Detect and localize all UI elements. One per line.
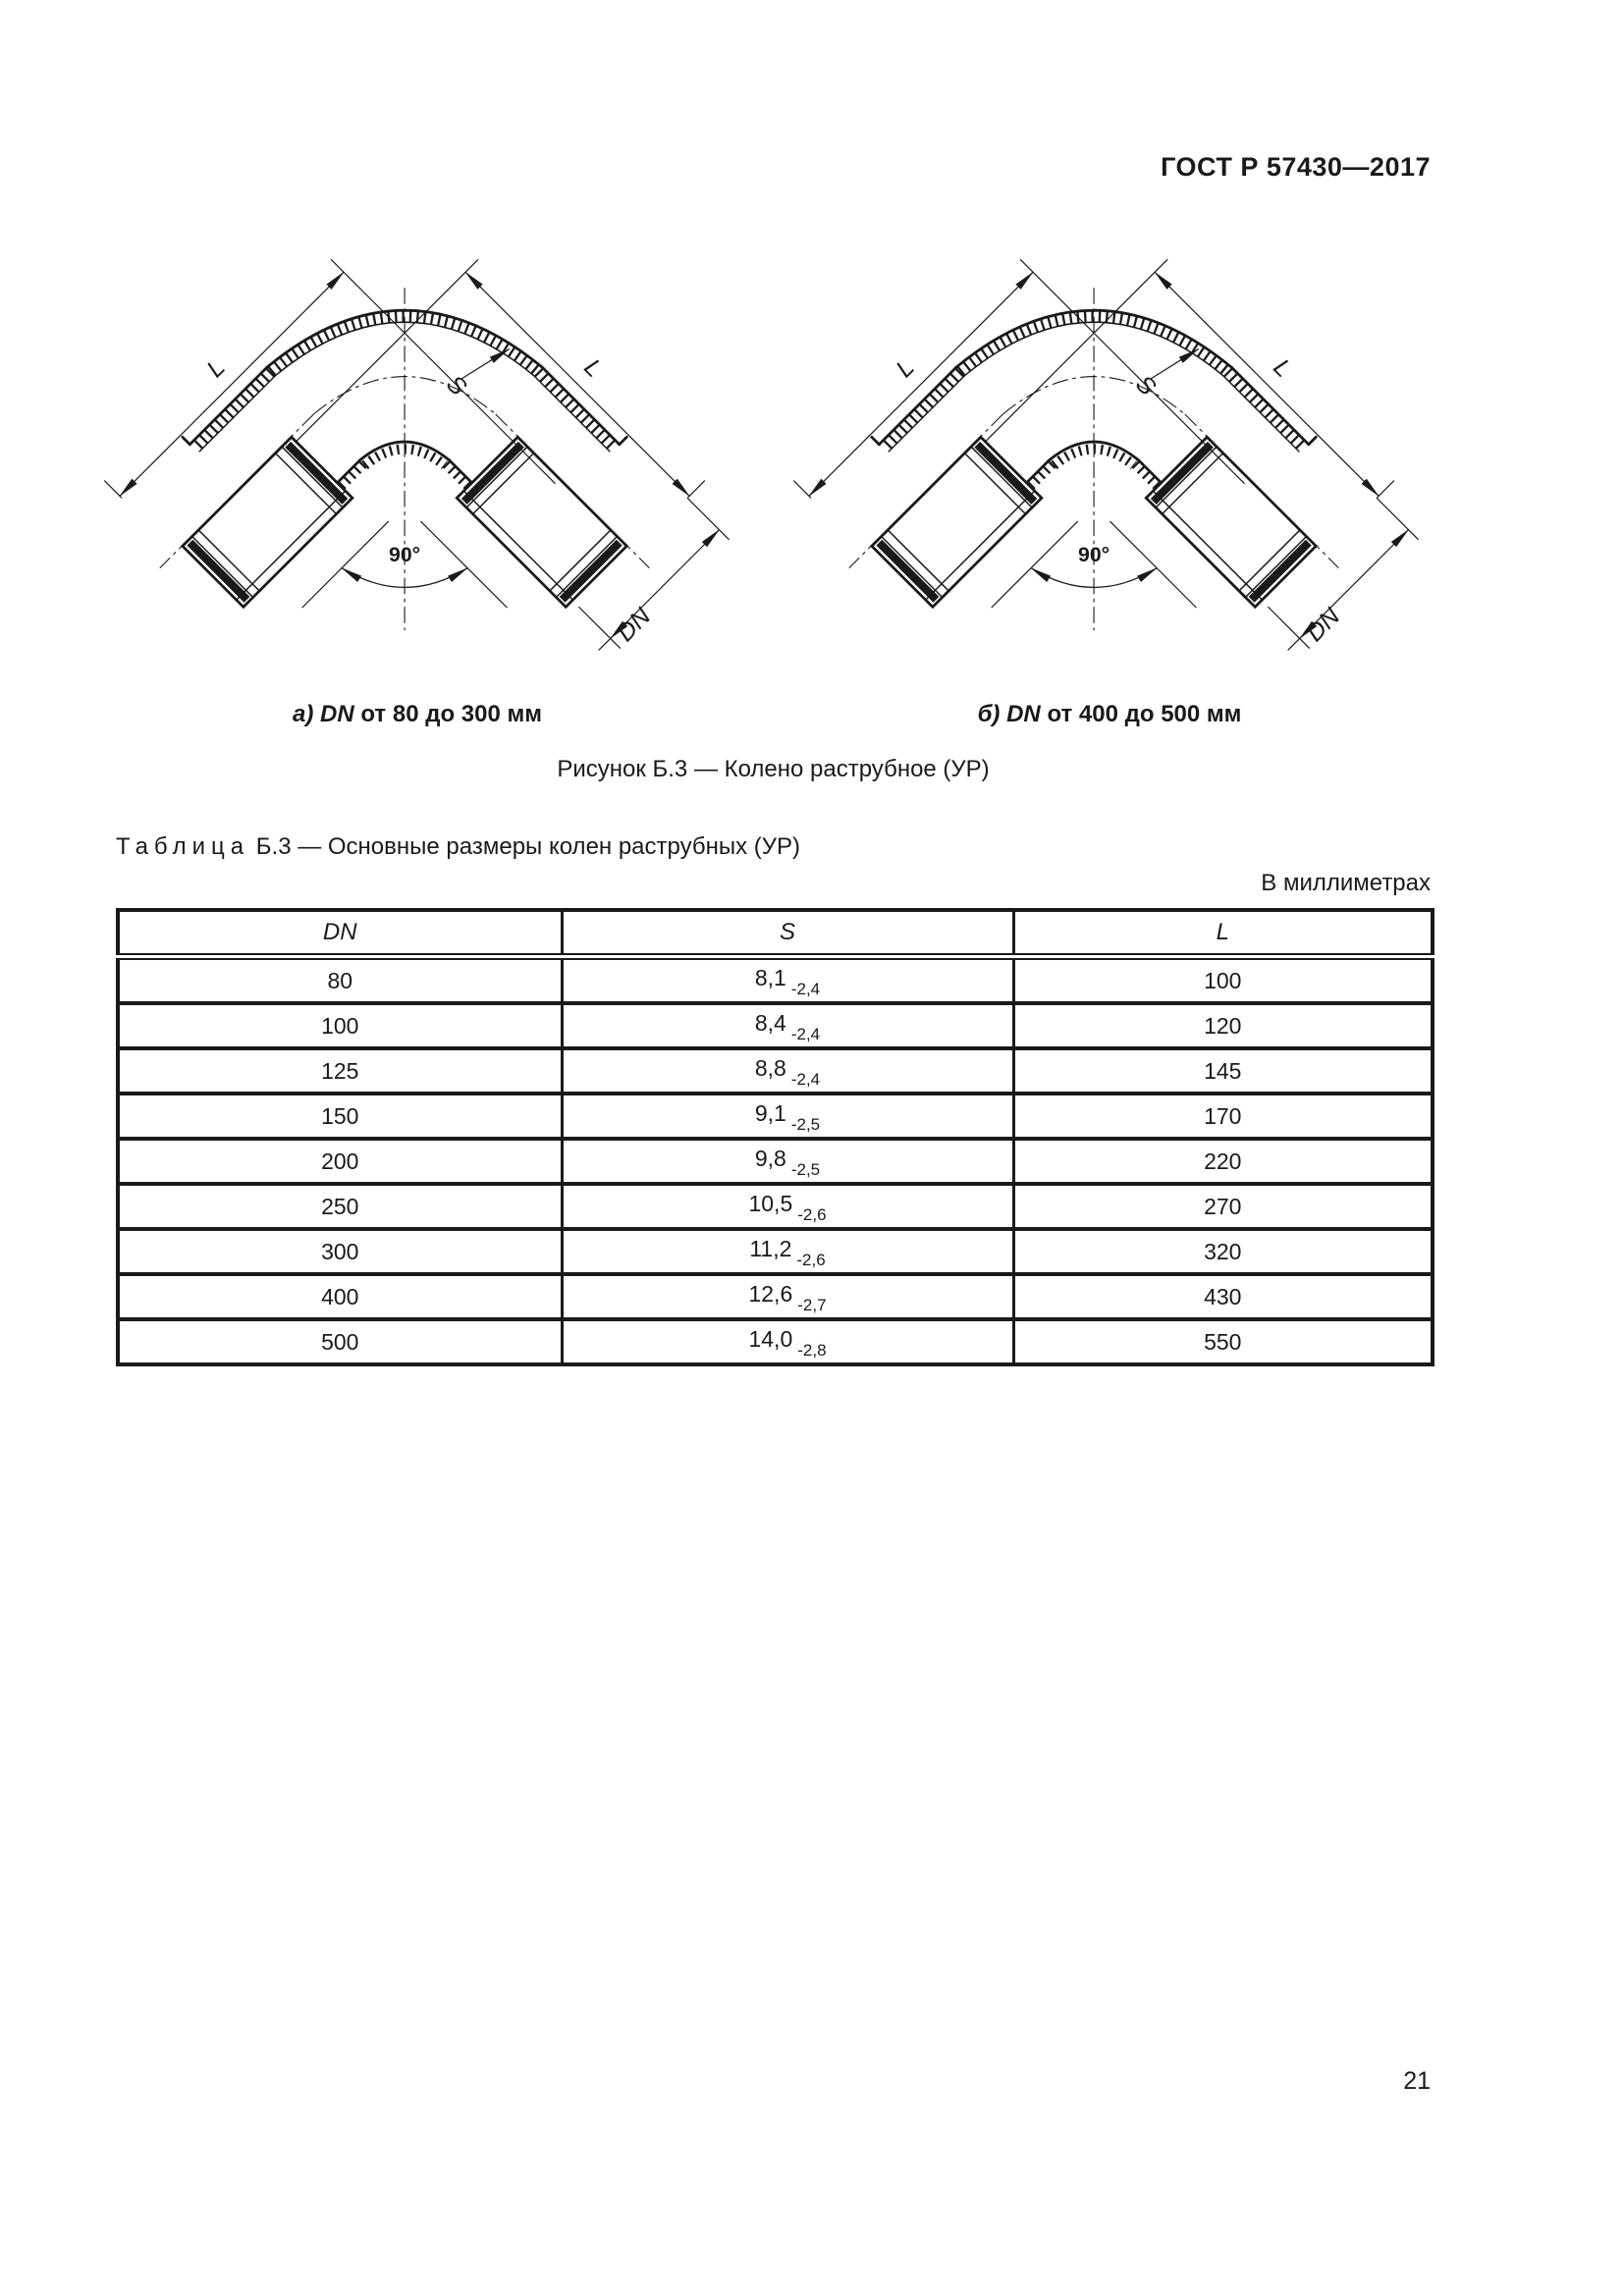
table-row: 1008,4-2,4120 [118, 1003, 1433, 1048]
figure-a-caption-dn: DN [320, 701, 354, 727]
elbow-drawing-a [98, 214, 736, 683]
document-page: ГОСТ Р 57430—2017 [0, 0, 1624, 2296]
table-caption-title: — Основные размеры колен раструбных (УР) [298, 833, 800, 860]
cell-l: 320 [1013, 1229, 1433, 1274]
units-note: В миллиметрах [116, 870, 1431, 897]
figure-a-caption-letter: а) [293, 701, 313, 727]
table-row: 25010,5-2,6270 [118, 1184, 1433, 1229]
elbow-drawing-b [787, 214, 1426, 683]
page-number: 21 [116, 2067, 1431, 2096]
col-header-l: L [1013, 910, 1433, 957]
cell-s: 9,8-2,5 [562, 1139, 1013, 1184]
cell-s: 8,8-2,4 [562, 1048, 1013, 1094]
cell-s: 12,6-2,7 [562, 1274, 1013, 1319]
cell-l: 430 [1013, 1274, 1433, 1319]
col-header-dn: DN [118, 910, 562, 957]
cell-dn: 125 [118, 1048, 562, 1094]
figure-caption: Рисунок Б.3 — Колено раструбное (УР) [116, 756, 1431, 783]
table-row: 40012,6-2,7430 [118, 1274, 1433, 1319]
table-row: 808,1-2,4100 [118, 957, 1433, 1004]
cell-dn: 100 [118, 1003, 562, 1048]
cell-s: 8,4-2,4 [562, 1003, 1013, 1048]
figure-b-caption: б) DN от 400 до 500 мм [790, 701, 1429, 728]
table-header-row: DN S L [118, 910, 1433, 957]
table-row: 2009,8-2,5220 [118, 1139, 1433, 1184]
standard-code-header: ГОСТ Р 57430—2017 [116, 152, 1431, 183]
figure-a-caption-range: от 80 до 300 мм [360, 701, 542, 727]
table-caption-word: Таблица [116, 833, 249, 860]
figure-a-caption: а) DN от 80 до 300 мм [103, 701, 731, 728]
cell-s: 11,2-2,6 [562, 1229, 1013, 1274]
figure-b-caption-letter: б) [978, 701, 1001, 727]
table-body: 808,1-2,41001008,4-2,41201258,8-2,414515… [118, 957, 1433, 1365]
col-header-s: S [562, 910, 1013, 957]
cell-l: 100 [1013, 957, 1433, 1004]
cell-l: 145 [1013, 1048, 1433, 1094]
table-row: 50014,0-2,8550 [118, 1319, 1433, 1364]
figure-b-caption-range: от 400 до 500 мм [1047, 701, 1241, 727]
cell-dn: 500 [118, 1319, 562, 1364]
table-row: 1258,8-2,4145 [118, 1048, 1433, 1094]
cell-s: 10,5-2,6 [562, 1184, 1013, 1229]
table-row: 1509,1-2,5170 [118, 1094, 1433, 1139]
table-caption: Таблица Б.3 — Основные размеры колен рас… [116, 833, 800, 861]
table-caption-number: Б.3 [256, 833, 292, 860]
cell-dn: 250 [118, 1184, 562, 1229]
cell-l: 270 [1013, 1184, 1433, 1229]
cell-l: 170 [1013, 1094, 1433, 1139]
cell-s: 14,0-2,8 [562, 1319, 1013, 1364]
cell-dn: 80 [118, 957, 562, 1004]
dimensions-table: DN S L 808,1-2,41001008,4-2,41201258,8-2… [116, 908, 1435, 1366]
cell-dn: 400 [118, 1274, 562, 1319]
cell-l: 120 [1013, 1003, 1433, 1048]
cell-l: 550 [1013, 1319, 1433, 1364]
table-row: 30011,2-2,6320 [118, 1229, 1433, 1274]
figure-b-caption-dn: DN [1006, 701, 1041, 727]
cell-s: 9,1-2,5 [562, 1094, 1013, 1139]
cell-dn: 150 [118, 1094, 562, 1139]
cell-s: 8,1-2,4 [562, 957, 1013, 1004]
cell-dn: 300 [118, 1229, 562, 1274]
cell-dn: 200 [118, 1139, 562, 1184]
cell-l: 220 [1013, 1139, 1433, 1184]
